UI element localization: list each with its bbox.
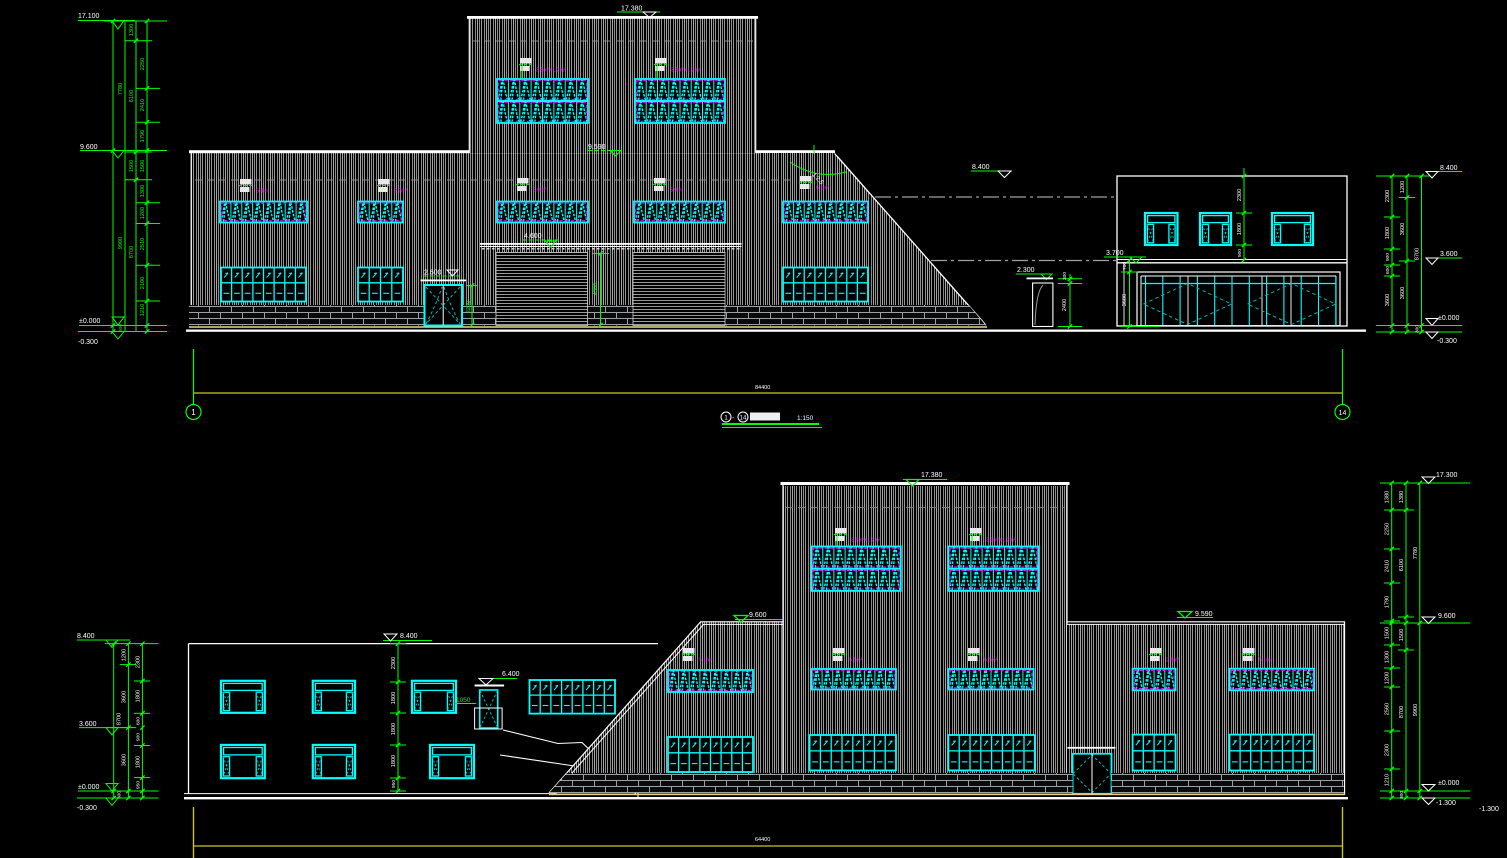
svg-text:1800: 1800: [135, 690, 141, 702]
svg-text:2300: 2300: [1385, 744, 1391, 756]
svg-text:2300: 2300: [1385, 190, 1391, 202]
svg-text:1300: 1300: [140, 185, 146, 197]
svg-text:1380: 1380: [1399, 491, 1405, 503]
svg-text:8.400: 8.400: [400, 633, 418, 640]
svg-text:17.100: 17.100: [78, 13, 100, 20]
svg-text:600: 600: [135, 717, 141, 725]
svg-text:6.400: 6.400: [502, 671, 520, 678]
svg-text:1500: 1500: [1399, 629, 1405, 641]
svg-text:6100: 6100: [1399, 559, 1405, 571]
svg-text:-0.300: -0.300: [78, 339, 98, 346]
svg-text:3600: 3600: [1385, 294, 1391, 306]
svg-text:1200: 1200: [121, 649, 127, 661]
svg-text:-0.300: -0.300: [1437, 338, 1457, 345]
svg-text:±0.000: ±0.000: [79, 318, 100, 325]
svg-text:2300: 2300: [1237, 189, 1243, 201]
svg-text:2250: 2250: [1385, 523, 1391, 535]
svg-text:1500: 1500: [140, 160, 146, 172]
svg-text:3.6m²+1.2m²: 3.6m²+1.2m²: [986, 538, 1016, 544]
svg-text:4300: 4300: [593, 283, 599, 295]
svg-text:3.600: 3.600: [1440, 251, 1458, 258]
svg-text:300: 300: [118, 324, 124, 332]
svg-text:9.600: 9.600: [1438, 613, 1456, 620]
svg-text:8.400: 8.400: [77, 633, 95, 640]
svg-text:14: 14: [1339, 410, 1347, 417]
svg-text:5.1m²: 5.1m²: [699, 658, 713, 664]
svg-text:3.6m²+1.2m²: 3.6m²+1.2m²: [671, 68, 701, 74]
svg-text:5.1m²: 5.1m²: [1259, 658, 1273, 664]
svg-text:5.4m²: 5.4m²: [256, 189, 270, 195]
svg-text:1500: 1500: [129, 160, 135, 172]
svg-text:3600: 3600: [1122, 294, 1128, 306]
svg-text:1800: 1800: [1237, 223, 1243, 235]
svg-text:8700: 8700: [129, 246, 135, 258]
svg-text:3600: 3600: [121, 754, 127, 766]
svg-text:2100: 2100: [140, 277, 146, 289]
svg-text:300: 300: [1415, 325, 1421, 333]
svg-text:5.0m²: 5.0m²: [670, 188, 684, 194]
svg-text:2400: 2400: [1062, 299, 1068, 311]
svg-text:±0.000: ±0.000: [1438, 780, 1459, 787]
svg-text:2300: 2300: [391, 657, 397, 669]
svg-text:1050: 1050: [456, 697, 471, 704]
svg-text:1800: 1800: [135, 756, 141, 768]
svg-text:1800: 1800: [391, 692, 397, 704]
svg-text:±0.000: ±0.000: [1438, 315, 1459, 322]
svg-text:4.600: 4.600: [524, 233, 542, 240]
svg-text:9.600: 9.600: [749, 612, 767, 619]
svg-text:1380: 1380: [1385, 491, 1391, 503]
svg-text:2.600: 2.600: [424, 270, 442, 277]
svg-text:-1.300: -1.300: [1479, 806, 1499, 813]
svg-text:1790: 1790: [140, 130, 146, 142]
svg-text:17.380: 17.380: [621, 6, 643, 13]
svg-text:1790: 1790: [1385, 596, 1391, 608]
svg-text:-1.300: -1.300: [1436, 800, 1456, 807]
svg-text:700: 700: [1122, 262, 1128, 270]
svg-text:-0.300: -0.300: [77, 805, 97, 812]
svg-text:3.6m²+1.2m²: 3.6m²+1.2m²: [851, 538, 881, 544]
svg-text:3.700: 3.700: [1106, 250, 1124, 257]
svg-text:950: 950: [135, 781, 141, 789]
svg-text:6100: 6100: [129, 90, 135, 102]
svg-text:2410: 2410: [140, 99, 146, 111]
svg-text:2.300: 2.300: [1017, 267, 1035, 274]
svg-text:2300: 2300: [135, 656, 141, 668]
svg-text:1: 1: [191, 408, 196, 417]
svg-text:2560: 2560: [1385, 703, 1391, 715]
svg-text:17.300: 17.300: [1436, 472, 1458, 479]
svg-text:8700: 8700: [117, 713, 123, 725]
svg-text:1800: 1800: [391, 723, 397, 735]
svg-text:3600: 3600: [1400, 223, 1406, 235]
svg-text:7780: 7780: [1413, 547, 1419, 559]
svg-text:5.1m²: 5.1m²: [849, 658, 863, 664]
svg-text:8.400: 8.400: [972, 164, 990, 171]
svg-text:1800: 1800: [391, 755, 397, 767]
svg-text:9.590: 9.590: [1195, 611, 1213, 618]
svg-text:7780: 7780: [118, 83, 124, 95]
svg-text:3.6m²+1.2m²: 3.6m²+1.2m²: [536, 68, 566, 74]
svg-text:1300: 1300: [1385, 651, 1391, 663]
svg-text:1210: 1210: [1385, 774, 1391, 786]
svg-text:2.7m²: 2.7m²: [394, 189, 408, 195]
svg-text:8700: 8700: [1415, 248, 1421, 260]
svg-text:1200: 1200: [1385, 672, 1391, 684]
svg-text:1:150: 1:150: [797, 415, 814, 422]
svg-text:84400: 84400: [755, 385, 770, 391]
svg-text:600: 600: [1385, 266, 1391, 274]
svg-text:9900: 9900: [1413, 704, 1419, 716]
svg-text:64400: 64400: [755, 837, 770, 843]
svg-text:17.380: 17.380: [921, 472, 943, 479]
svg-text:8.400: 8.400: [1440, 165, 1458, 172]
svg-text:1300: 1300: [129, 24, 135, 36]
svg-text:1500: 1500: [1385, 627, 1391, 639]
svg-text:900: 900: [1237, 249, 1243, 257]
svg-text:9900: 9900: [118, 237, 124, 249]
svg-text:8700: 8700: [1399, 706, 1405, 718]
svg-text:900: 900: [1385, 253, 1391, 261]
svg-text:3600: 3600: [1400, 287, 1406, 299]
svg-text:2.6m²: 2.6m²: [1166, 658, 1180, 664]
svg-text:5.1m²: 5.1m²: [816, 186, 830, 192]
svg-text:1800: 1800: [1385, 227, 1391, 239]
svg-text:2410: 2410: [1385, 560, 1391, 572]
svg-text:14: 14: [740, 416, 747, 422]
svg-text:300: 300: [1399, 791, 1405, 799]
svg-text:2200: 2200: [466, 301, 472, 313]
svg-text:±0.000: ±0.000: [78, 784, 99, 791]
svg-text:1200: 1200: [140, 207, 146, 219]
svg-text:5.0m²: 5.0m²: [533, 188, 547, 194]
svg-text:900: 900: [135, 733, 141, 741]
svg-text:9.590: 9.590: [588, 144, 606, 151]
svg-text:950: 950: [391, 780, 397, 788]
svg-text:3600: 3600: [121, 691, 127, 703]
svg-text:300: 300: [1062, 272, 1068, 280]
svg-text:1210: 1210: [140, 304, 146, 316]
svg-text:1200: 1200: [1400, 181, 1406, 193]
svg-text:2510: 2510: [140, 238, 146, 250]
svg-text:3.600: 3.600: [79, 721, 97, 728]
svg-text:5.1m²: 5.1m²: [984, 658, 998, 664]
svg-text:9.600: 9.600: [80, 144, 98, 151]
svg-text:2250: 2250: [140, 58, 146, 70]
svg-text:1: 1: [724, 415, 728, 422]
